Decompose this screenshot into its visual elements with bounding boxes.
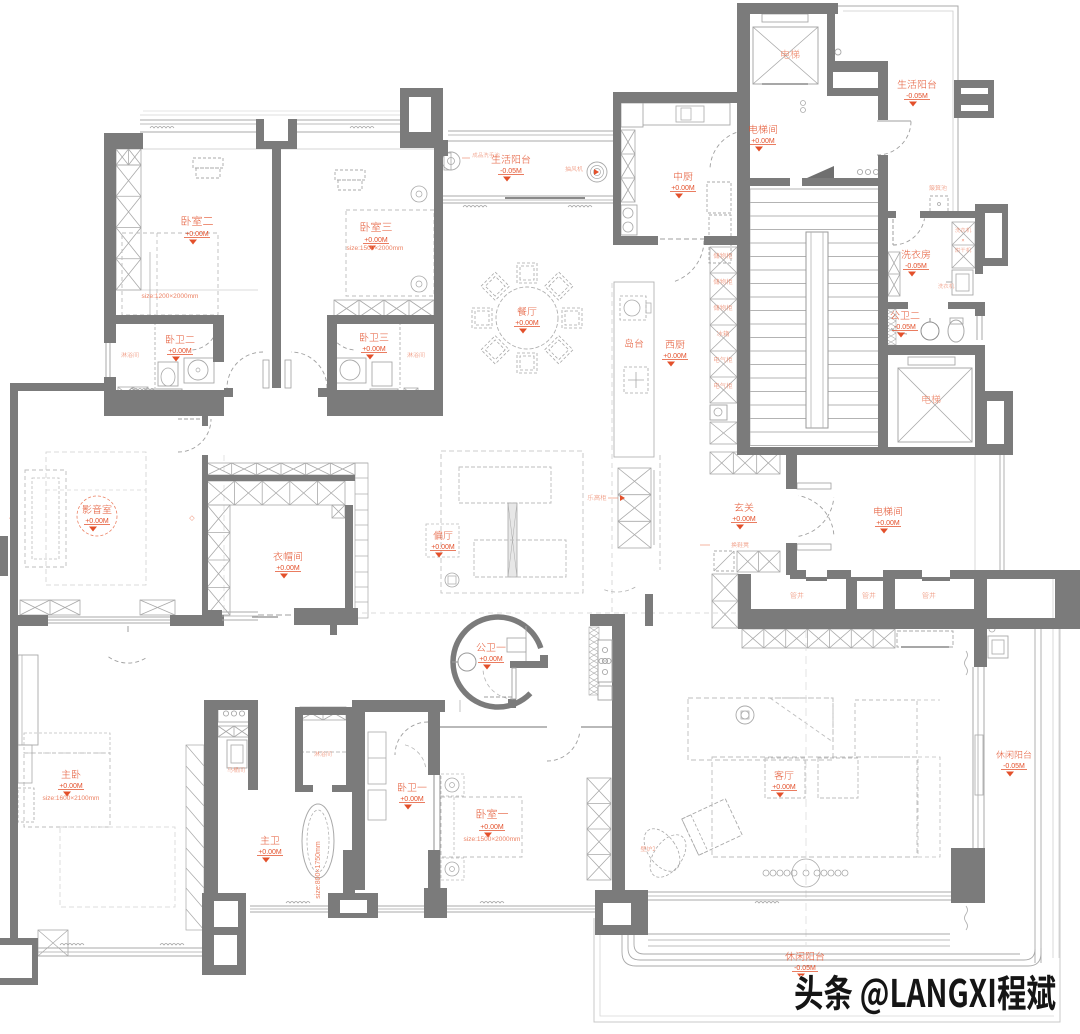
- svg-text:+0.00M: +0.00M: [876, 520, 900, 527]
- svg-text:size:800×1750mm: size:800×1750mm: [315, 841, 322, 899]
- svg-text:+0.00M: +0.00M: [732, 516, 756, 523]
- svg-text:+0.00M: +0.00M: [59, 783, 83, 790]
- svg-text:+0.00M: +0.00M: [480, 824, 504, 831]
- svg-text:size:1500×2000mm: size:1500×2000mm: [347, 245, 404, 252]
- svg-text:-0.05M: -0.05M: [905, 263, 927, 270]
- svg-text:+0.00M: +0.00M: [400, 796, 424, 803]
- svg-text:+0.00M: +0.00M: [431, 544, 455, 551]
- svg-text:+0.00M: +0.00M: [479, 656, 503, 663]
- svg-text:+0.00M: +0.00M: [258, 849, 282, 856]
- svg-text:-0.05M: -0.05M: [794, 965, 816, 972]
- svg-text:+0.00M: +0.00M: [364, 237, 388, 244]
- svg-text:size:1600×2100mm: size:1600×2100mm: [43, 795, 100, 802]
- svg-text:+0.00M: +0.00M: [185, 231, 209, 238]
- svg-text:-0.05M: -0.05M: [906, 93, 928, 100]
- svg-text:+0.00M: +0.00M: [671, 185, 695, 192]
- svg-text:+0.00M: +0.00M: [168, 348, 192, 355]
- svg-text:+0.00M: +0.00M: [663, 353, 687, 360]
- svg-text:+0.00M: +0.00M: [362, 346, 386, 353]
- svg-text:-0.05M: -0.05M: [500, 168, 522, 175]
- svg-text:+0.00M: +0.00M: [751, 138, 775, 145]
- svg-text:+0.00M: +0.00M: [772, 784, 796, 791]
- svg-text:◇: ◇: [189, 515, 195, 522]
- svg-text:+0.00M: +0.00M: [276, 565, 300, 572]
- svg-text:size:1500×2000mm: size:1500×2000mm: [464, 836, 521, 843]
- svg-text:-0.05M: -0.05M: [1003, 763, 1025, 770]
- svg-text:size:1200×2000mm: size:1200×2000mm: [142, 293, 199, 300]
- svg-text:-0.05M: -0.05M: [894, 324, 916, 331]
- svg-text:×: ×: [961, 238, 964, 244]
- svg-text:+0.00M: +0.00M: [85, 518, 109, 525]
- svg-text:+0.00M: +0.00M: [515, 320, 539, 327]
